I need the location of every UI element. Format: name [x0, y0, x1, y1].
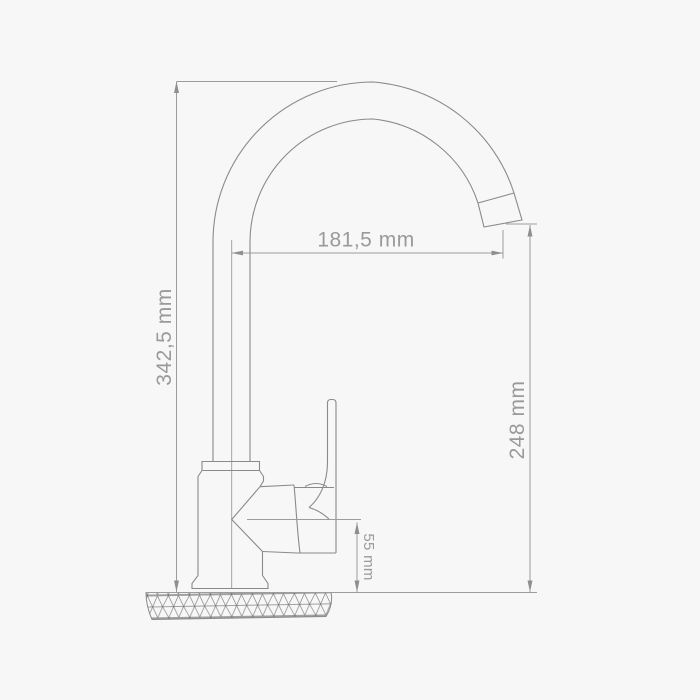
- dimension-label-total-height: 342,5 mm: [153, 288, 176, 385]
- handle-lever: [328, 400, 337, 554]
- dimension-label-outlet-height: 248 mm: [506, 381, 529, 460]
- diagram-canvas: 342,5 mm 181,5 mm 248 mm: [0, 0, 700, 700]
- faucet-technical-drawing: 342,5 mm 181,5 mm 248 mm: [0, 0, 700, 700]
- dimension-outlet-height: 248 mm: [506, 224, 537, 592]
- base-plate: [146, 593, 332, 620]
- body-top-junction-line: [260, 485, 294, 487]
- base-plate-slab: [146, 593, 332, 620]
- collar: [202, 462, 260, 471]
- spout-outer-edge: [213, 82, 514, 461]
- dimension-label-spout-reach: 181,5 mm: [317, 229, 414, 252]
- handle-front-detail: [309, 508, 329, 520]
- body-bottom-edge: [263, 552, 337, 554]
- dimension-annotations: 342,5 mm 181,5 mm 248 mm: [146, 82, 537, 593]
- faucet-outline: [192, 82, 522, 589]
- spout-inner-edge: [250, 119, 478, 461]
- body-right-edge: [260, 471, 264, 487]
- dimension-spout-reach: 181,5 mm: [232, 229, 503, 259]
- aerator-tip: [478, 193, 522, 227]
- handle-front-curve: [309, 462, 328, 508]
- body-left-and-foot: [192, 471, 268, 589]
- dimension-label-handle-axis: 55 mm: [360, 533, 377, 580]
- dimension-total-height: 342,5 mm: [153, 82, 337, 593]
